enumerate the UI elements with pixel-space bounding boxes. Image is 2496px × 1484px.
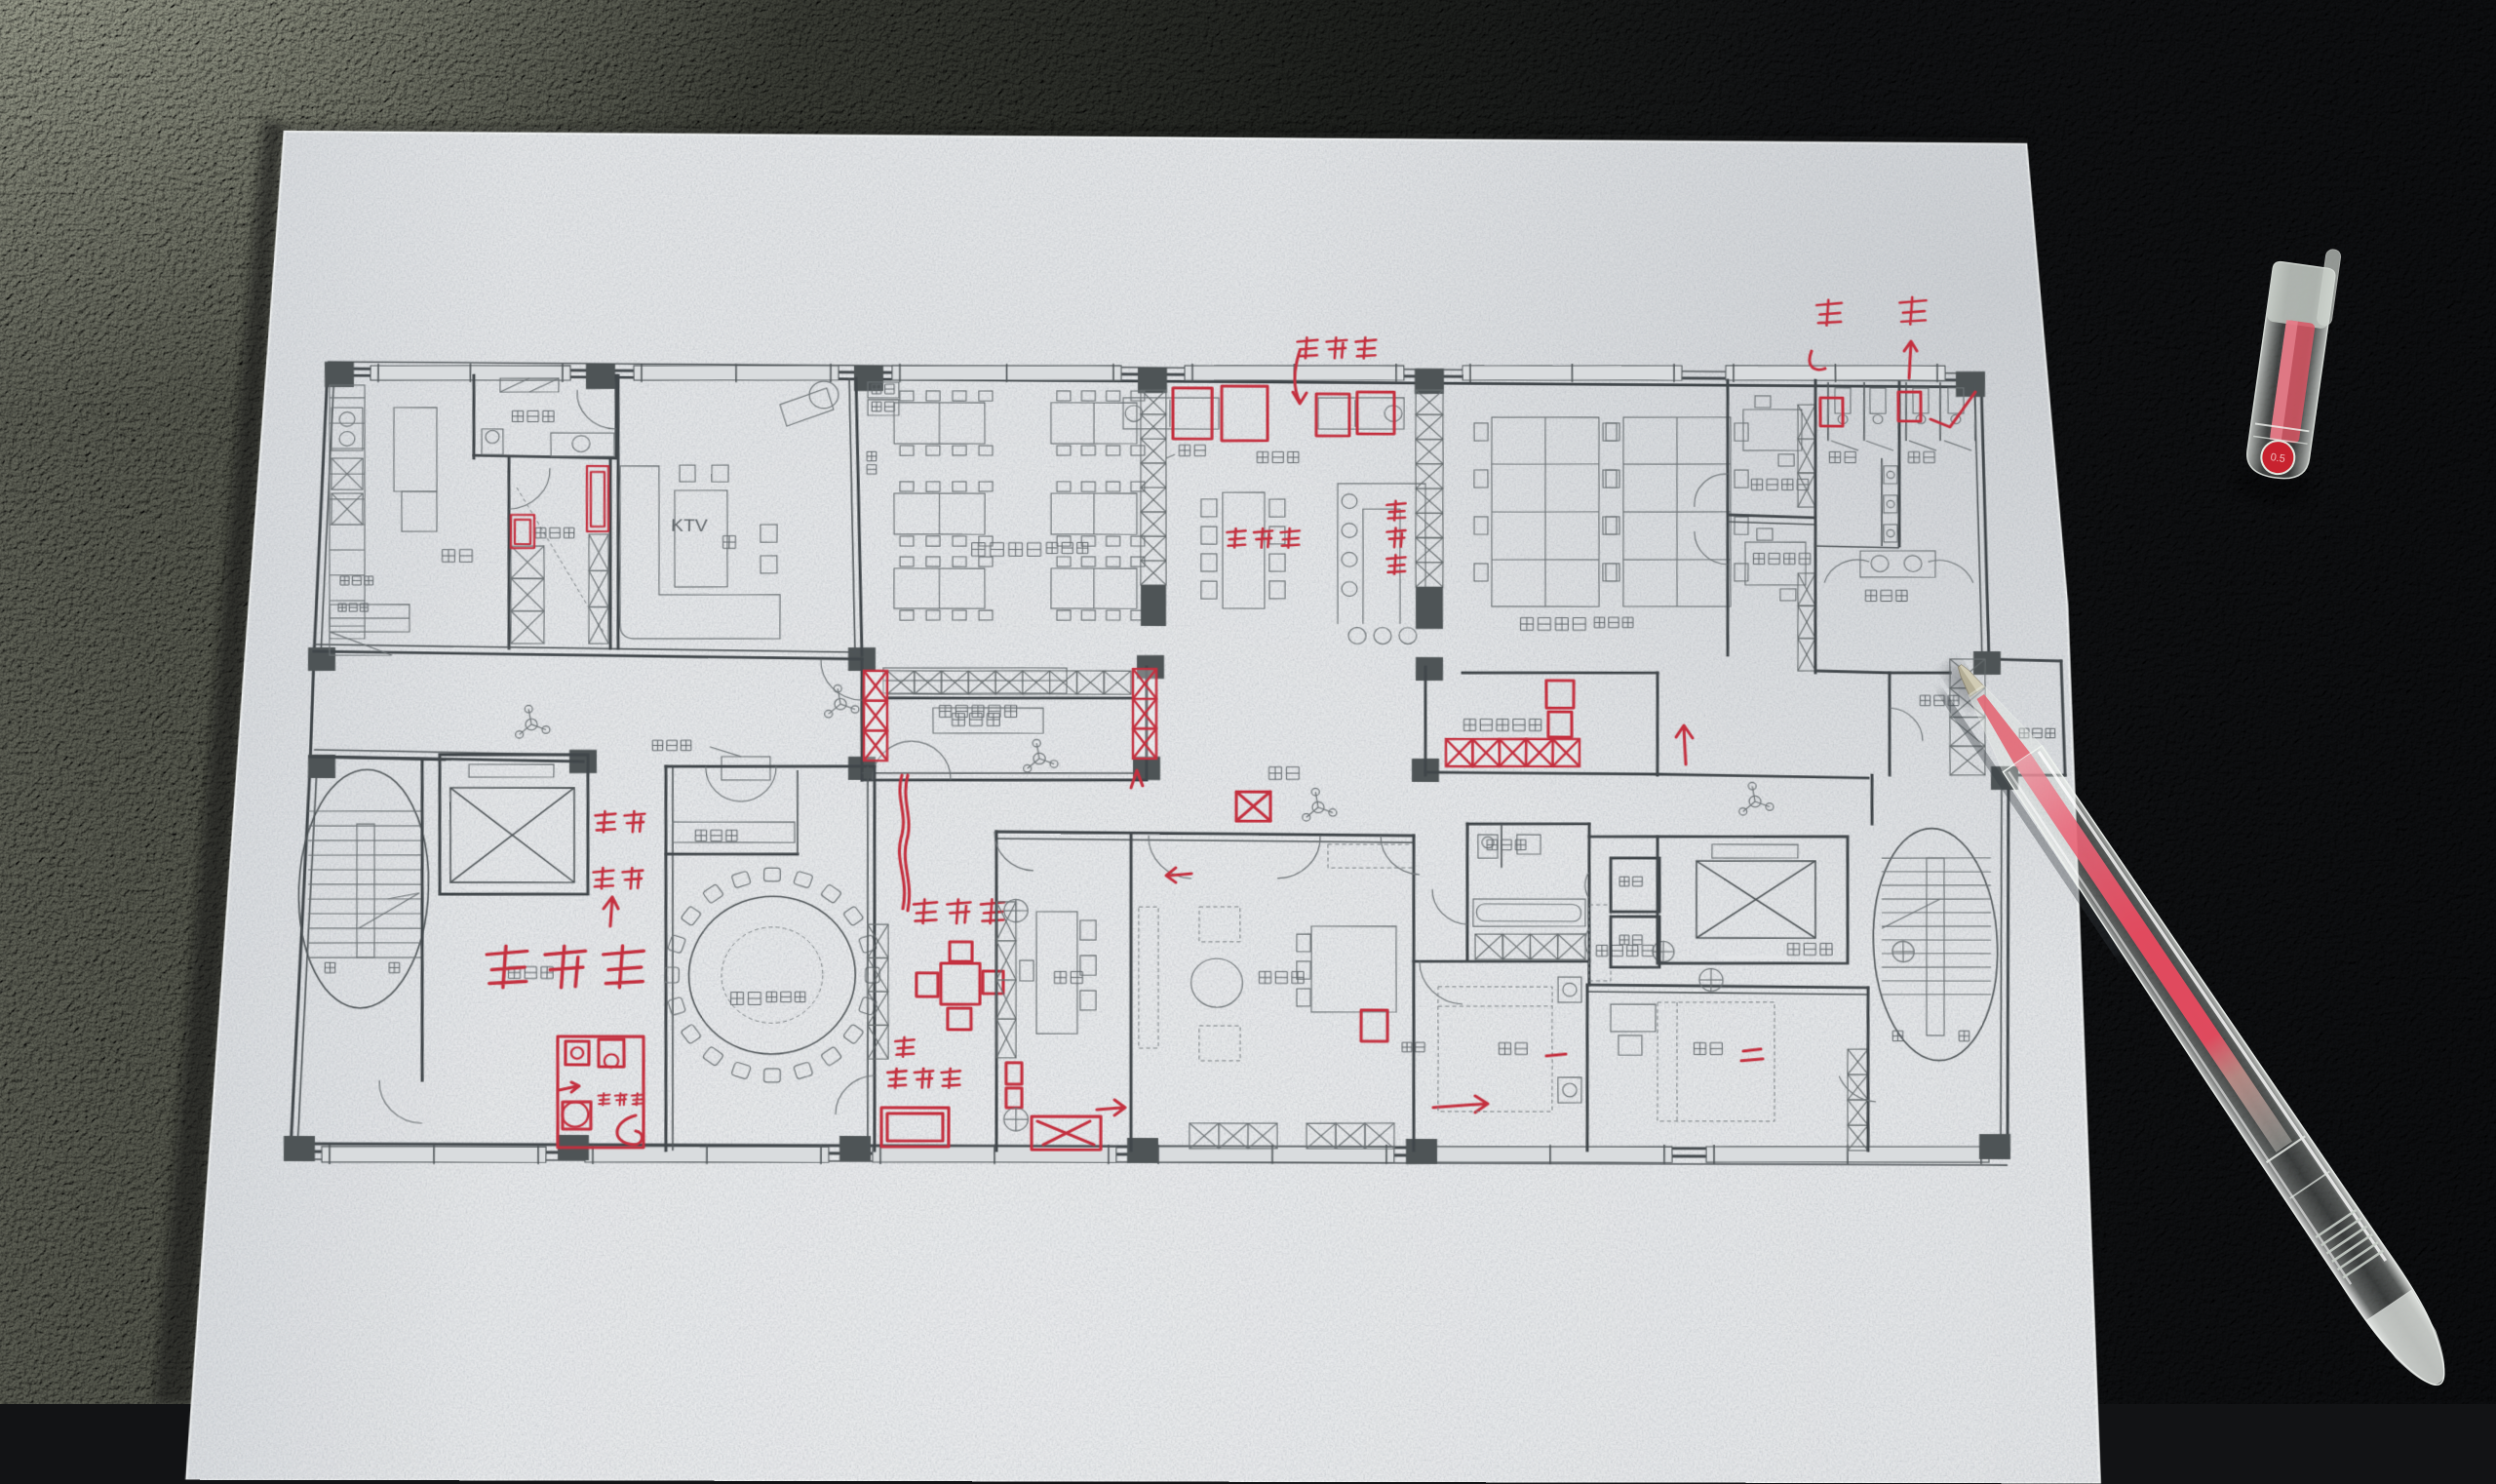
svg-text:0.5: 0.5	[2270, 451, 2286, 465]
